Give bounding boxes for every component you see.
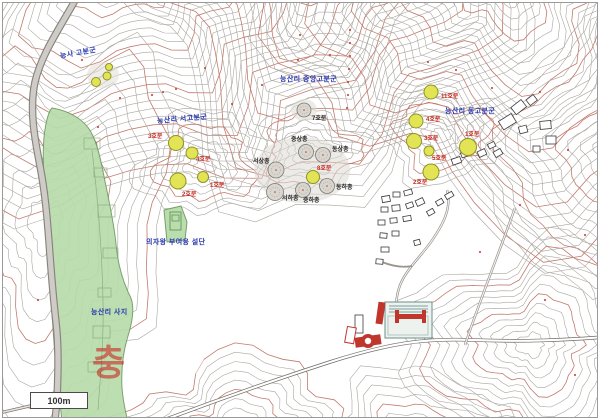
neungsa-tomb-circle (92, 78, 101, 87)
topographic-site-map: 능사 고분군 능산리 서고분군 능산리 중앙고분군 능산리 동고분군 의자왕 부… (0, 0, 600, 420)
watermark-ghost (135, 342, 169, 374)
east-tomb1-circle (460, 139, 477, 156)
mound-jungsang (299, 145, 314, 160)
neungsa-tomb-circle (106, 64, 113, 71)
cluster-label-central: 능산리 중앙고분군 (280, 76, 337, 83)
mound-label-dongha: 동하총 (336, 185, 353, 191)
west-tomb3-circle (169, 136, 184, 151)
east-tomb11-circle (424, 85, 438, 99)
mound-dongha (320, 179, 335, 194)
tomb-label-east-4: 4호분 (426, 117, 440, 123)
watermark-text: 충 (92, 334, 125, 386)
scale-bar: 100m (30, 392, 88, 409)
tomb-label-west-1: 1호분 (210, 183, 224, 189)
tomb-label-central-8: 8호분 (317, 166, 331, 172)
mound-label-dongsang: 동상총 (332, 147, 349, 153)
red-annex-building (375, 302, 385, 325)
tomb-label-east-5: 5호분 (432, 156, 446, 162)
mound-dongsang (316, 148, 331, 163)
mound-seoha (267, 184, 284, 201)
mound-7 (297, 103, 311, 117)
east-tomb2-circle (423, 164, 439, 180)
site-label-temple: 능산리 사지 (91, 309, 128, 316)
neungsa-tomb-circle (103, 72, 111, 80)
tomb-label-east-11: 11호분 (441, 94, 458, 100)
mound-label-seosang: 서상총 (253, 159, 270, 165)
mound-label-jungsang: 중상총 (291, 137, 308, 143)
central-tomb8-circle (307, 171, 320, 184)
cluster-label-east: 능산리 동고분군 (445, 108, 495, 115)
east-tomb5-circle (424, 146, 434, 156)
tomb-label-west-3: 3호분 (148, 134, 162, 140)
east-tomb3-circle (407, 134, 422, 149)
altar-site-area (164, 206, 187, 242)
tomb-label-east-3: 3호분 (424, 136, 438, 142)
site-label-altar: 의자왕 부여융 설단 (146, 239, 205, 246)
mound-seosang (268, 162, 284, 178)
tomb-label-west-2: 2호분 (182, 192, 196, 198)
mound-label-jungha: 중하총 (303, 198, 320, 204)
tomb-label-east-2: 2호분 (413, 180, 427, 186)
mound-label-seoha: 서하총 (282, 196, 299, 202)
east-tomb4-circle (409, 114, 423, 128)
tomb-label-west-4: 4호분 (196, 157, 210, 163)
village-buildings (376, 189, 454, 264)
west-tomb2-circle (170, 173, 186, 189)
mound-label-7: 7호분 (312, 116, 326, 122)
tomb-label-east-1: 1호분 (465, 132, 479, 138)
watermark-ghost (174, 344, 204, 374)
northeast-buildings (498, 95, 556, 152)
scale-bar-label: 100m (47, 396, 70, 406)
main-road-casing (138, 337, 600, 420)
map-canvas (0, 0, 600, 420)
west-tomb1-circle (198, 172, 209, 183)
